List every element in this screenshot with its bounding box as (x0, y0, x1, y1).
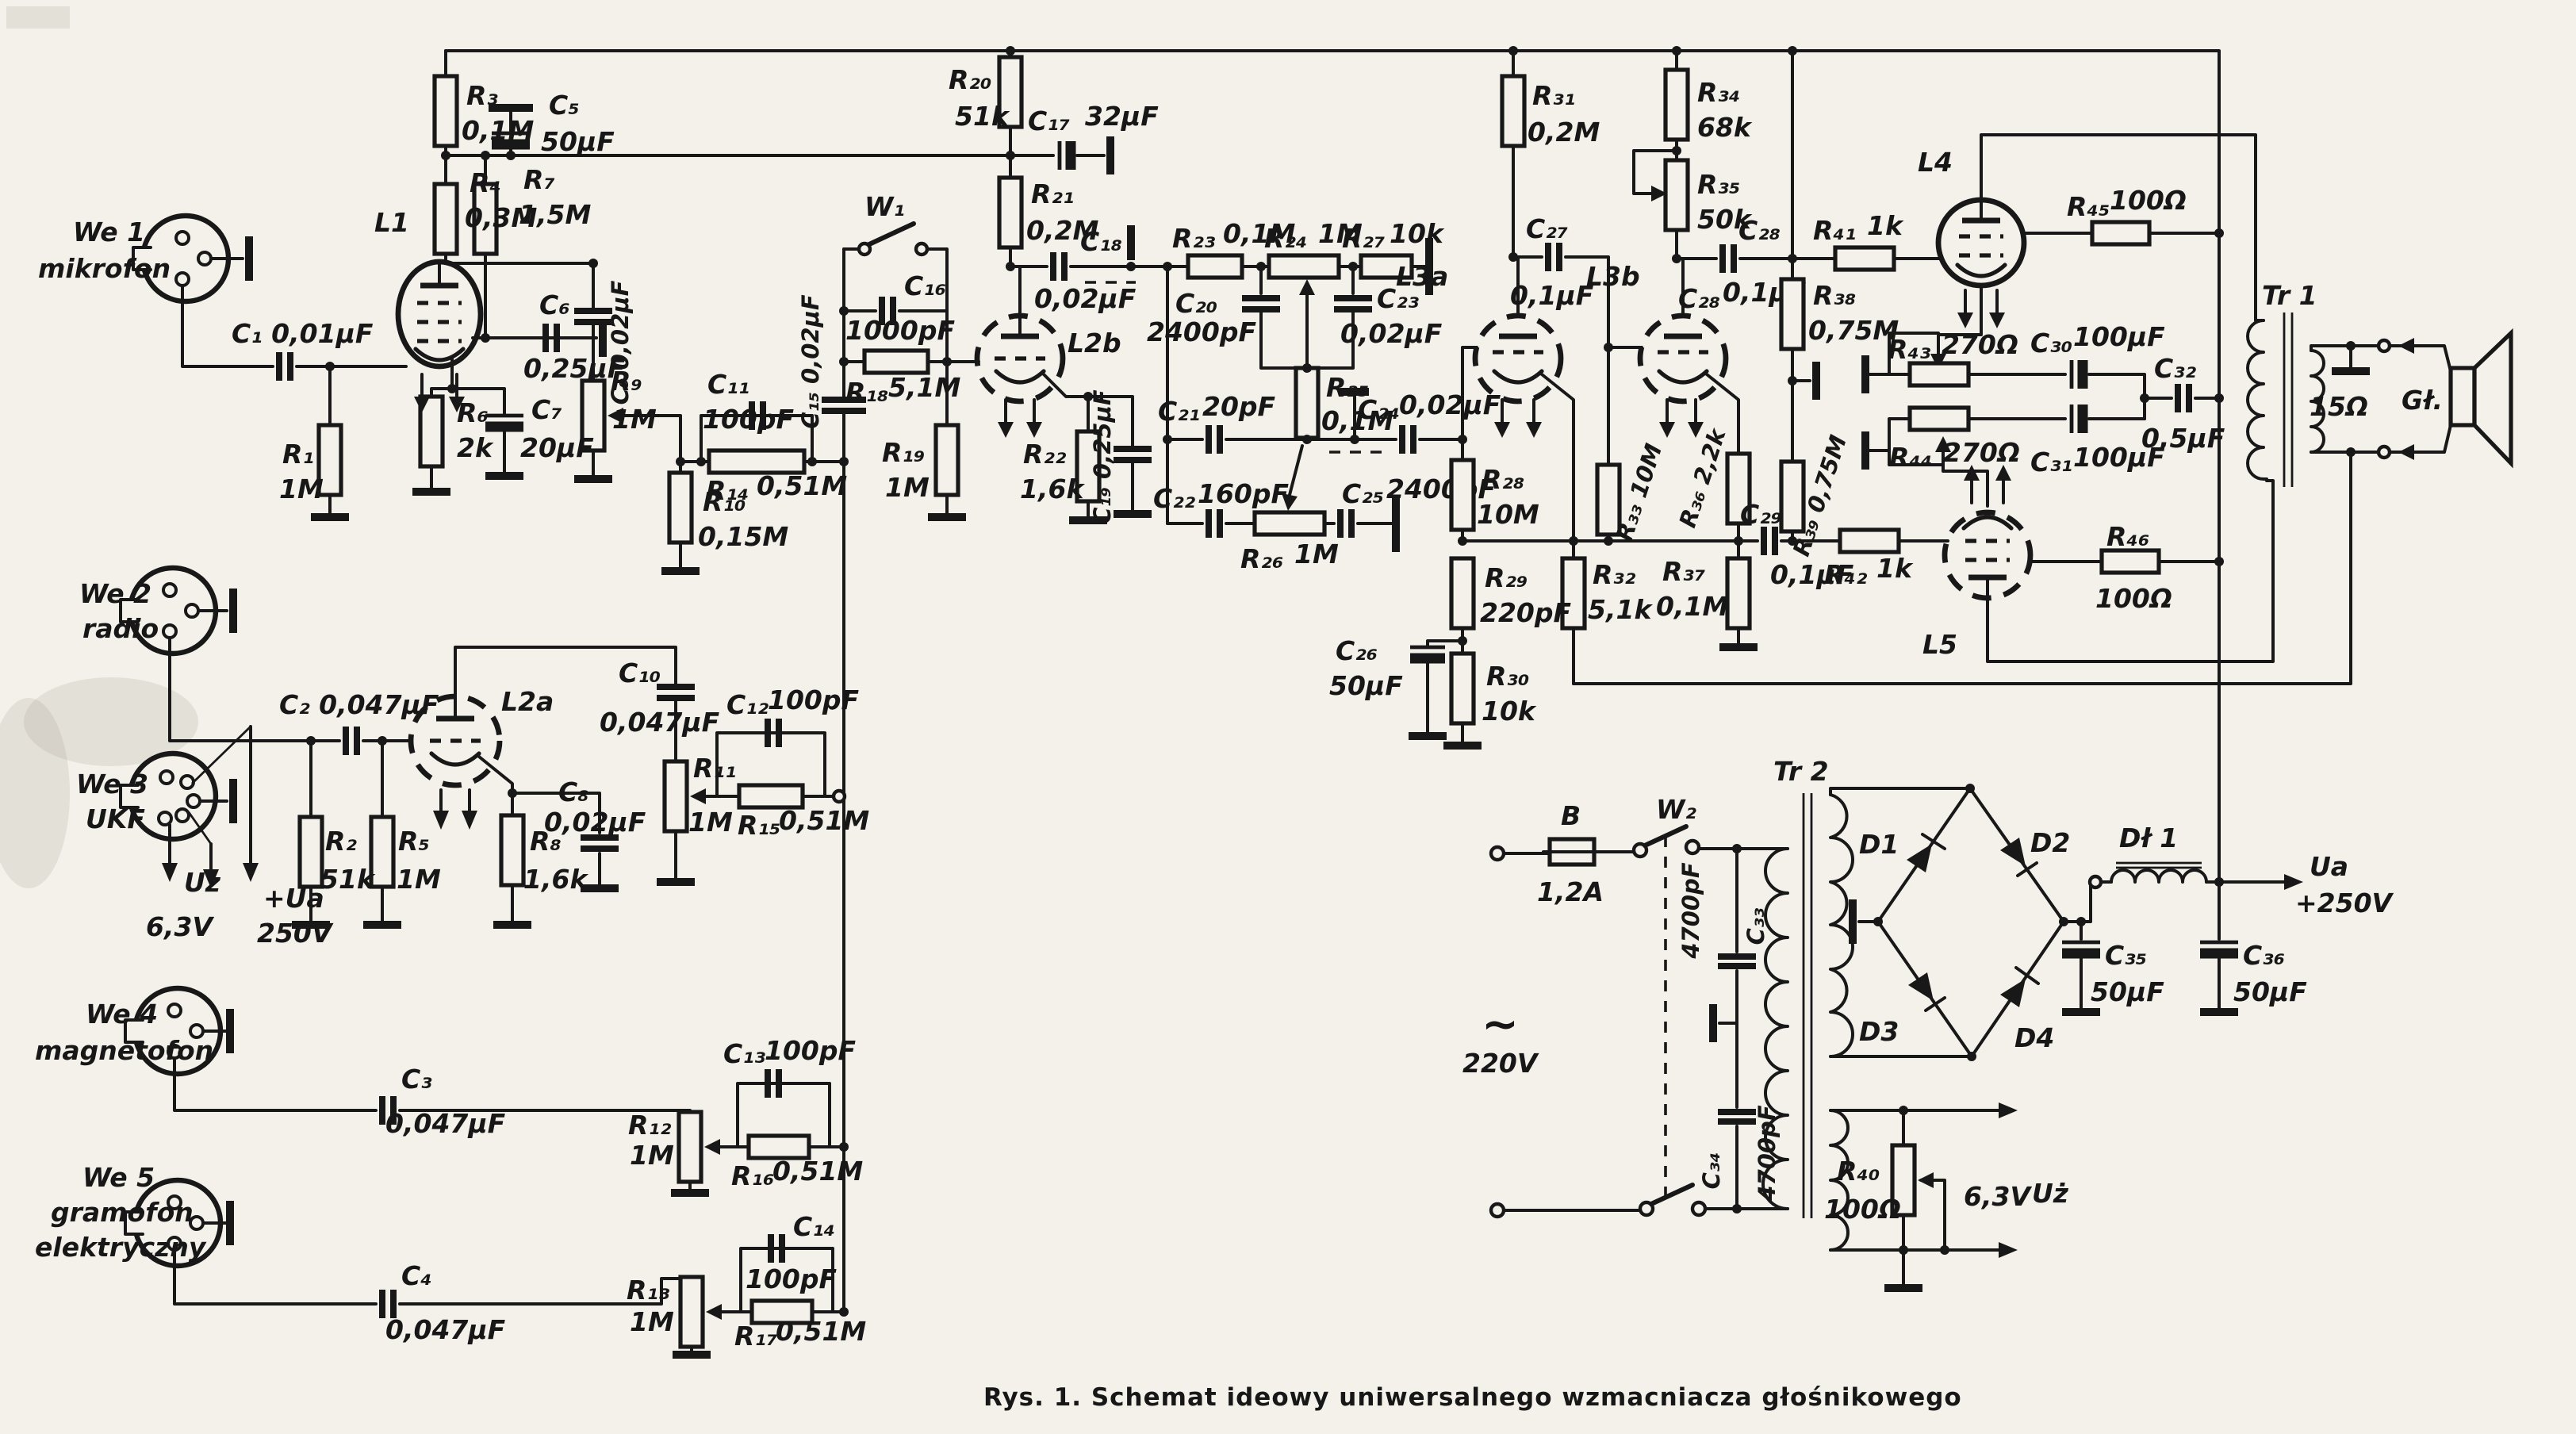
label-c24-value: 0,02μF (1399, 389, 1501, 420)
label-c5: C₅ (549, 90, 580, 121)
label-c7: C₇ (531, 394, 562, 425)
label-r22: R₂₂ (1023, 439, 1067, 470)
resistor-R4 (435, 184, 457, 254)
mains-terminal (1491, 847, 1504, 860)
capacitor-C29 (1764, 527, 1775, 555)
resistor-R14 (709, 451, 804, 473)
resistor-R25 (1296, 368, 1318, 438)
label-l1: L1 (374, 207, 409, 238)
label-r13: R₁₃ (627, 1275, 670, 1306)
label-c26-value: 50μF (1329, 670, 1403, 701)
capacitor-C23 (1334, 298, 1372, 309)
label-l2b: L2b (1068, 328, 1121, 358)
resistor-R10 (669, 473, 692, 543)
resistor-R37 (1727, 558, 1750, 628)
label-c25: C₂₅ (1342, 478, 1384, 509)
label-r31: R₃₁ (1532, 80, 1575, 111)
label-r24: R₂₄ (1264, 223, 1307, 254)
label-r21: R₂₁ (1031, 178, 1074, 209)
label-r11: R₁₁ (693, 753, 736, 784)
resistor-R34 (1666, 70, 1688, 140)
speaker-terminal (2379, 447, 2390, 458)
resistor-R19 (936, 425, 958, 495)
label-r11-value: 1M (688, 807, 733, 838)
label-r17-value: 0,51M (776, 1316, 866, 1347)
label-d3: D3 (1859, 1016, 1899, 1047)
label-r32-value: 5,1k (1588, 594, 1653, 625)
capacitor-C34 (1718, 1112, 1756, 1122)
stage-L2b-R20-R21: R₂₀ 51k C₁₇ 32μF R₂₁ 0,2M C₁₈ 0,02μF L2b… (949, 51, 1188, 524)
diode-D4 (2000, 979, 2026, 1007)
label-r23: R₂₃ (1172, 223, 1216, 254)
resistor-R30 (1451, 654, 1474, 723)
label-c1: C₁ 0,01μF (232, 318, 374, 349)
label-r20-value: 51k (955, 101, 1010, 132)
resistor-R2 (300, 817, 322, 887)
figure-caption: Rys. 1. Schemat ideowy uniwersalnego wzm… (983, 1383, 1962, 1412)
wiper-arrow-R24 (1299, 279, 1315, 295)
label-r4: R₄ (470, 167, 501, 198)
label-c31: C₃₁ (2030, 447, 2072, 477)
label-we5-function2: elektryczny (35, 1232, 207, 1263)
label-w1: W₁ (864, 191, 905, 222)
resistor-R15 (739, 785, 803, 807)
label-r34: R₃₄ (1697, 77, 1740, 108)
label-we2: We 2 (79, 578, 151, 609)
label-r16: R₁₆ (731, 1160, 774, 1191)
speaker-cone (2474, 333, 2511, 463)
label-c5-value: 50μF (541, 126, 615, 157)
switch-W1-contact (916, 243, 927, 255)
label-r42: R₄₂ (1824, 559, 1868, 590)
label-r31-value: 0,2M (1528, 117, 1600, 148)
label-d2: D2 (2030, 827, 2070, 858)
label-r18-value: 5,1M (888, 372, 960, 403)
label-we3: We 3 (76, 769, 148, 799)
label-we5-function: gramofon (51, 1197, 194, 1228)
resistor-R46 (2102, 550, 2159, 573)
wiper-arrow-R12 (704, 1139, 720, 1155)
label-r14-value: 0,51M (757, 470, 847, 501)
label-r26: R₂₆ (1240, 543, 1283, 574)
potentiometer-R26 (1255, 512, 1324, 535)
resistor-R31 (1502, 76, 1524, 146)
label-r7-value: 1,5M (519, 199, 591, 230)
input-we1-microphone: We 1 mikrofon C₁ 0,01μF R₁ 1M (38, 216, 406, 517)
capacitor-C10 (657, 687, 695, 698)
resistor-R18 (864, 351, 928, 373)
label-r12-value: 1M (630, 1140, 674, 1171)
capacitor-C19 (1114, 449, 1152, 460)
label-c27: C₂₇ (1526, 213, 1568, 244)
capacitor-C21 (1209, 425, 1220, 454)
label-r8-value: 1,6k (523, 864, 588, 895)
supply-arrow-ua (243, 863, 259, 882)
label-c11: C₁₁ (707, 369, 749, 400)
label-uz1: Uż (184, 867, 221, 898)
label-l5: L5 (1922, 629, 1957, 660)
resistor-R5 (371, 817, 393, 887)
label-mains-ac: ~ (1482, 999, 1519, 1050)
resistor-R8 (501, 815, 523, 885)
label-c13-value: 100pF (765, 1035, 857, 1066)
capacitor-C25 (1340, 509, 1351, 538)
switch-W2-contact (1686, 841, 1699, 853)
label-r28-value: 10M (1477, 499, 1539, 530)
label-c11-value: 100pF (703, 404, 795, 435)
label-r42-value: 1k (1876, 553, 1914, 584)
heater-arrow (998, 422, 1014, 438)
label-c20: C₂₀ (1175, 288, 1217, 319)
label-tr1: Tr 1 (2262, 280, 2317, 311)
label-c6: C₆ (539, 289, 570, 320)
label-r45-value: 100Ω (2110, 185, 2187, 216)
resistor-R3 (435, 76, 457, 146)
label-c28-top: C₂₈ (1738, 215, 1781, 246)
potentiometer-R35 (1666, 160, 1688, 230)
tube-L3a (1475, 316, 1561, 401)
heater-arrow (1989, 312, 2005, 328)
label-c21-value: 20pF (1202, 391, 1276, 422)
label-r1-value: 1M (279, 474, 324, 504)
potentiometer-R44 (1910, 408, 1968, 430)
label-c26: C₂₆ (1336, 635, 1378, 666)
label-r45: R₄₅ (2067, 191, 2110, 222)
label-c2: C₂ 0,047μF (279, 689, 439, 720)
label-r7: R₇ (523, 164, 555, 195)
label-c22-value: 160pF (1198, 478, 1290, 509)
label-heater-uz: Uż (2032, 1178, 2069, 1209)
label-15ohm: 15Ω (2310, 391, 2368, 422)
label-c13: C₁₃ (723, 1038, 766, 1069)
switch-W1-blade (869, 224, 914, 244)
capacitor-C2 (346, 727, 357, 755)
label-d1: D1 (1859, 829, 1899, 860)
label-c14-value: 100pF (746, 1263, 838, 1294)
label-c34: C₃₄ (1698, 1152, 1725, 1190)
label-we5: We 5 (82, 1162, 155, 1193)
label-r2-value: 51k (320, 864, 376, 895)
label-c36-value: 50μF (2233, 976, 2307, 1007)
capacitor-C1 (279, 352, 290, 381)
label-r34-value: 68k (1697, 112, 1753, 143)
label-mains-voltage: 220V (1462, 1048, 1539, 1079)
heater-arrow (1026, 422, 1042, 438)
label-c19: C₁₉ 0,25μF (1089, 389, 1116, 524)
label-r16-value: 0,51M (772, 1156, 863, 1187)
resistor-R42 (1840, 530, 1899, 552)
heater-arrow (1494, 422, 1510, 438)
schematic-canvas: We 1 mikrofon C₁ 0,01μF R₁ 1M R₃ 0,1M C₅… (0, 0, 2576, 1434)
capacitor-C24 (1402, 425, 1413, 454)
label-r9-value: 1M (612, 404, 657, 435)
label-r6-value: 2k (457, 432, 494, 463)
resistor-R38 (1781, 279, 1804, 349)
speaker-terminal (2379, 340, 2390, 351)
potentiometer-R11 (665, 761, 687, 831)
label-r46-value: 100Ω (2095, 583, 2172, 614)
label-c3: C₃ (401, 1064, 432, 1095)
label-r10: R₁₀ (703, 486, 746, 517)
power-supply: B 1,2A W₂ ~ 220V C₃₃ 4700pF C₃₄ 4700pF T… (1462, 756, 2394, 1288)
label-r46: R₄₆ (2106, 521, 2149, 552)
label-c18: C₁₈ (1080, 226, 1122, 257)
paper-smudge (6, 6, 70, 29)
label-c10: C₁₀ (619, 658, 661, 688)
label-r18: R₁₈ (845, 377, 888, 408)
potentiometer-R43 (1910, 363, 1968, 385)
label-c35-value: 50μF (2091, 976, 2164, 1007)
supply-arrow-63v (162, 863, 178, 882)
label-we4-function: magnetofon (35, 1035, 213, 1066)
label-r35: R₃₅ (1697, 169, 1740, 200)
terminal-arrow (2398, 444, 2414, 460)
label-r32: R₃₂ (1593, 559, 1636, 590)
label-dl1: Dł 1 (2119, 822, 2178, 853)
diode-D3 (1908, 972, 1934, 1001)
label-c24: C₂₄ (1358, 394, 1400, 425)
label-r30-value: 10k (1482, 696, 1537, 727)
label-l3b: L3b (1586, 261, 1640, 292)
resistor-R28 (1451, 460, 1474, 530)
tr1-core (2284, 312, 2292, 487)
label-we4: We 4 (86, 999, 158, 1029)
label-ua2: Ua (2310, 851, 2348, 882)
terminal-arrow (2398, 338, 2414, 354)
wiper-arrow-R11 (690, 788, 706, 804)
diode-D2 (2000, 838, 2026, 866)
label-l4: L4 (1918, 147, 1953, 178)
label-l3a: L3a (1396, 261, 1448, 292)
label-r20: R₂₀ (949, 64, 991, 95)
label-c20-value: 2400pF (1147, 316, 1256, 347)
label-c10-value: 0,047μF (600, 707, 720, 738)
label-c29: C₂₉ (1740, 499, 1782, 530)
label-r9: R₉ (611, 366, 642, 397)
input-we2-we3-L2a: We 2 radio We 3 UKF Uż 6,3V +Ua 250V C₂ … (76, 568, 869, 949)
label-c8: C₈ (558, 776, 589, 807)
label-we1: We 1 (73, 217, 145, 247)
label-c32: C₃₂ (2154, 353, 2197, 384)
label-heater-voltage: 6,3V (1964, 1181, 2032, 1212)
label-r26-value: 1M (1294, 539, 1339, 569)
label-r29: R₂₉ (1485, 562, 1528, 593)
tr1-primary-coil (2248, 320, 2267, 479)
label-c8-value: 0,02μF (544, 807, 646, 838)
label-c22: C₂₂ (1153, 483, 1196, 514)
label-fuse: B (1561, 800, 1581, 831)
resistor-R41 (1835, 247, 1894, 270)
speaker-magnet (2451, 368, 2474, 425)
label-r41: R₄₁ (1813, 215, 1856, 246)
capacitor-C33 (1718, 957, 1756, 966)
capacitor-C28 (1723, 244, 1734, 273)
label-r15: R₁₅ (738, 810, 780, 841)
label-l2a: L2a (501, 686, 554, 717)
potentiometer-R24 (1269, 255, 1339, 278)
label-c4: C₄ (401, 1260, 432, 1291)
label-c27-value: 0,1μF (1510, 280, 1594, 311)
label-we1-function: mikrofon (38, 253, 171, 284)
label-r1: R₁ (282, 439, 314, 470)
label-r27-value: 10k (1390, 218, 1445, 249)
label-c7-value: 20μF (520, 432, 594, 463)
label-r28: R₂₈ (1482, 464, 1524, 495)
label-r27: R₂₇ (1342, 223, 1385, 254)
label-r43: R₄₃ (1888, 334, 1931, 365)
label-r38-value: 0,75M (1808, 315, 1899, 346)
label-c30: C₃₀ (2030, 328, 2072, 358)
label-r44-value: 270Ω (1943, 437, 2020, 468)
label-c23-value: 0,02μF (1340, 318, 1443, 349)
label-r3-value: 0,1M (462, 115, 534, 146)
label-r36: R₃₆ 2,2k (1673, 424, 1731, 531)
label-we2-function: radio (82, 613, 159, 644)
label-r17: R₁₇ (734, 1321, 777, 1352)
label-c36: C₃₆ (2243, 940, 2285, 971)
label-r40-value: 100Ω (1824, 1194, 1901, 1225)
label-r13-value: 1M (630, 1306, 674, 1337)
output-transformer-Tr1: Tr 1 15Ω Gł. (2248, 280, 2511, 487)
label-r38: R₃₈ (1813, 280, 1856, 311)
label-r2: R₂ (325, 826, 357, 857)
resistor-R16 (749, 1136, 809, 1158)
label-c30-value: 100μF (2073, 321, 2165, 352)
label-ua2-value: +250V (2295, 888, 2394, 918)
label-r30: R₃₀ (1486, 661, 1529, 692)
label-c33-value: 4700pF (1677, 862, 1704, 959)
heater-arrow (433, 811, 449, 830)
label-c21: C₂₁ (1158, 396, 1200, 427)
label-r29-value: 220pF (1480, 597, 1572, 628)
label-c16: C₁₆ (904, 270, 946, 301)
label-r12: R₁₂ (628, 1110, 672, 1141)
label-r19: R₁₉ (882, 437, 925, 468)
label-c14: C₁₄ (793, 1211, 835, 1242)
label-c15: C₁₅ 0,02μF (797, 294, 824, 429)
wiper-arrow-R40 (1918, 1172, 1934, 1188)
capacitor-C20 (1242, 298, 1280, 309)
resistor-R45 (2092, 222, 2149, 244)
bus-tap-terminal (834, 791, 845, 802)
label-c31-value: 100μF (2073, 442, 2165, 473)
label-d4: D4 (2014, 1022, 2054, 1053)
label-r40: R₄₀ (1837, 1156, 1880, 1187)
label-r10-value: 0,15M (698, 521, 788, 552)
label-r5-value: 1M (397, 864, 441, 895)
heater-arrow (462, 811, 477, 830)
label-r3: R₃ (466, 80, 498, 111)
label-r43-value: 270Ω (1942, 329, 2018, 360)
potentiometer-R13 (680, 1277, 703, 1347)
label-r37-value: 0,1M (1656, 591, 1728, 622)
label-c16-value: 1000pF (845, 315, 955, 346)
label-c17-value: 32μF (1085, 101, 1159, 132)
label-r22-value: 1,6k (1020, 474, 1085, 504)
capacitor-C18 (1053, 252, 1064, 281)
heater-arrow (1659, 422, 1675, 438)
label-c3-value: 0,047μF (385, 1108, 506, 1139)
label-c18-value: 0,02μF (1034, 283, 1137, 314)
potentiometer-R12 (679, 1112, 701, 1182)
stage-L1: R₃ 0,1M C₅ 50μF R₄ 0,3M R₇ 1,5M L1 C₆ 0,… (374, 51, 680, 492)
capacitor-C32 (2178, 384, 2189, 412)
tube-L3b (1640, 316, 1726, 401)
diode-D1 (1907, 844, 1932, 872)
capacitor-C22 (1209, 509, 1220, 538)
label-speaker: Gł. (2402, 385, 2443, 416)
label-fuse-value: 1,2A (1537, 876, 1604, 907)
tr2-core (1804, 793, 1811, 1218)
heater-supply-arrow (1999, 1242, 2018, 1258)
mains-terminal (1491, 1204, 1504, 1217)
resistor-R21 (999, 178, 1022, 247)
label-r15-value: 0,51M (779, 805, 869, 836)
label-r41-value: 1k (1867, 210, 1904, 241)
label-c35: C₃₅ (2105, 940, 2147, 971)
label-r19-value: 1M (885, 472, 930, 503)
capacitor-C27 (1548, 243, 1559, 271)
label-r44: R₄₄ (1889, 442, 1932, 473)
heater-arrow (1957, 312, 1973, 328)
label-r37: R₃₇ (1662, 556, 1705, 587)
choke-Dl1 (2111, 870, 2206, 882)
input-we4-we5: We 4 magnetofon C₃ 0,047μF C₁₃ 100pF R₁₂… (35, 988, 866, 1355)
label-r5: R₅ (398, 826, 430, 857)
label-tr2: Tr 2 (1773, 756, 1829, 787)
switch-W2-contact (1692, 1202, 1705, 1215)
label-c12: C₁₂ (726, 689, 769, 720)
capacitor-C8 (581, 838, 619, 849)
label-we3-function: UKF (86, 803, 145, 834)
label-c17: C₁₇ (1028, 105, 1070, 136)
label-c12-value: 100pF (768, 684, 860, 715)
heater-arrow (1526, 422, 1542, 438)
label-63v: 6,3V (146, 911, 214, 942)
resistor-R23 (1188, 255, 1242, 278)
resistor-R29 (1451, 558, 1474, 628)
label-c4-value: 0,047μF (385, 1314, 506, 1345)
wiper-arrow-R13 (706, 1304, 722, 1320)
label-c28-bottom: C₂₈ (1678, 283, 1720, 314)
label-w2: W₂ (1656, 794, 1696, 825)
filter-terminal (2090, 876, 2101, 888)
heater-supply-arrow (1999, 1102, 2018, 1118)
